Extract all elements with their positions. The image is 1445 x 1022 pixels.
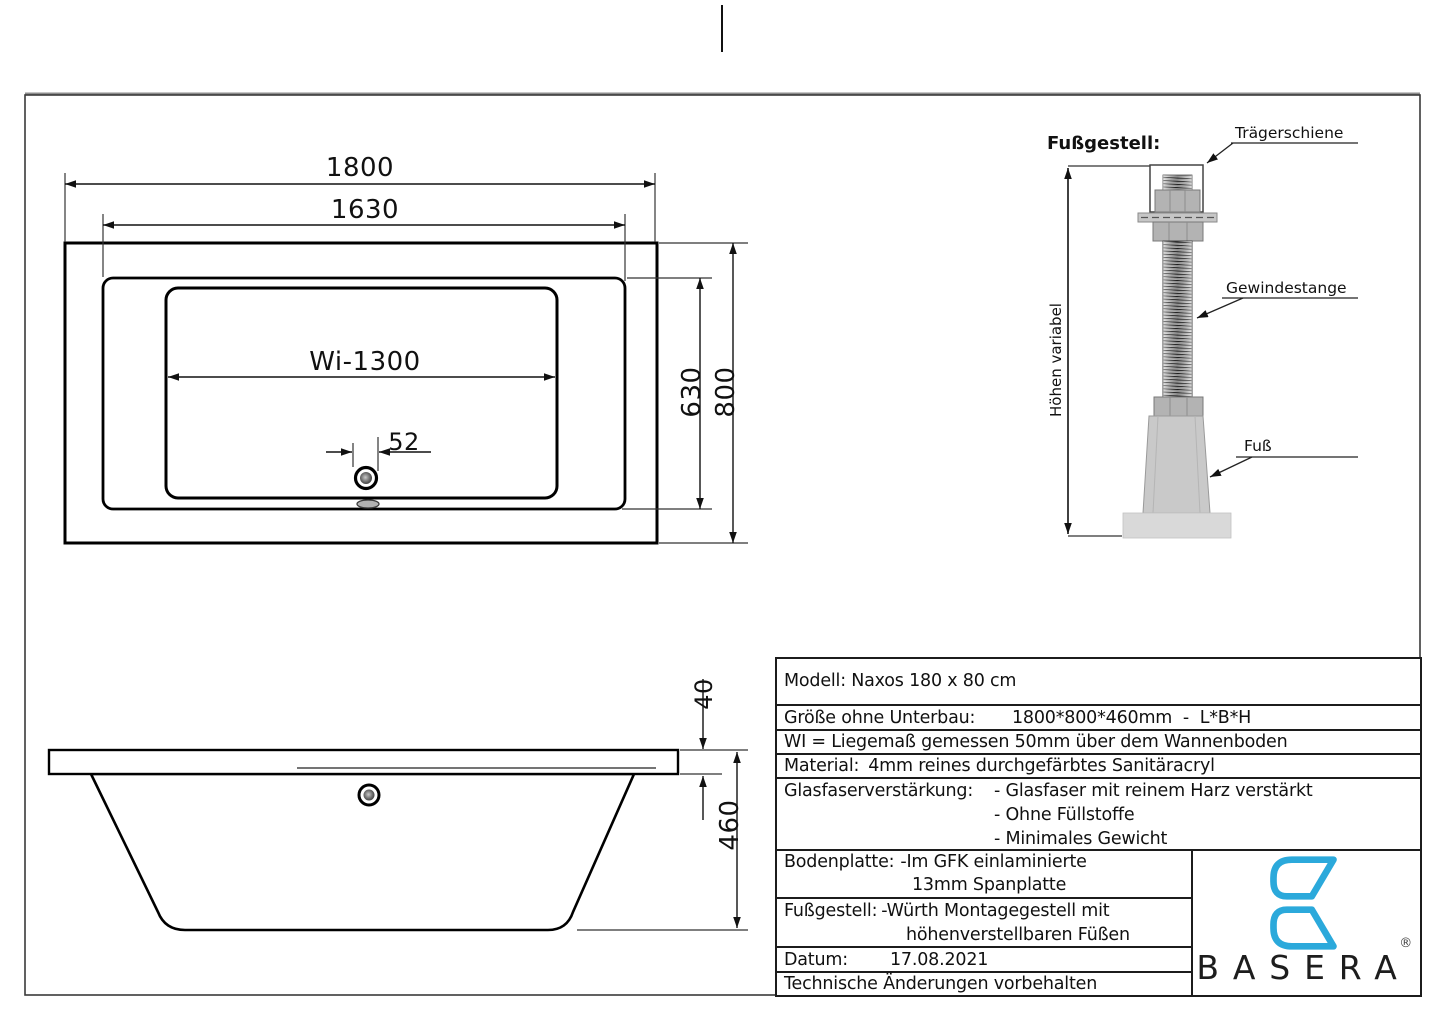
material-value: 4mm reines durchgefärbtes Sanitäracryl xyxy=(868,755,1215,777)
model-title: Modell: Naxos 180 x 80 cm xyxy=(777,659,1420,706)
foot-assembly-title: Fußgestell: xyxy=(1047,133,1160,154)
base-plate-shape xyxy=(1123,513,1231,538)
disclaimer: Technische Änderungen vorbehalten xyxy=(777,973,1191,995)
fiberglass-item: - Minimales Gewicht xyxy=(784,827,1420,851)
footframe-label: Fußgestell: xyxy=(784,899,877,923)
brand-logo-cell: BASERA ® xyxy=(1193,851,1420,995)
baseplate-line1: -Im GFK einlaminierte xyxy=(900,851,1086,874)
registered-trademark-icon: ® xyxy=(1399,936,1412,951)
title-block: Modell: Naxos 180 x 80 cm Größe ohne Unt… xyxy=(775,657,1422,997)
footframe-line1: -Würth Montagegestell mit xyxy=(881,899,1109,923)
baseplate-row: Bodenplatte: -Im GFK einlaminierte 13mm … xyxy=(777,851,1191,899)
foot-label: Fuß xyxy=(1244,437,1272,455)
fiberglass-item: - Glasfaser mit reinem Harz verstärkt xyxy=(994,779,1313,803)
threaded-rod-label: Gewindestange xyxy=(1226,279,1347,297)
dim-rim-length: 1630 xyxy=(310,195,420,225)
dim-drain-offset: 52 xyxy=(379,428,429,456)
dim-outer-length: 1800 xyxy=(305,153,415,183)
dim-rim-height: 40 xyxy=(690,664,714,724)
material-row: Material: 4mm reines durchgefärbtes Sani… xyxy=(777,755,1420,779)
drawing-sheet: 1800 1630 Wi-1300 52 630 800 40 460 Fußg… xyxy=(0,0,1445,1022)
date-row: Datum: 17.08.2021 xyxy=(777,948,1191,973)
brand-logo-icon xyxy=(1259,853,1347,953)
fiberglass-row: Glasfaserverstärkung: - Glasfaser mit re… xyxy=(777,779,1420,851)
material-label: Material: xyxy=(784,755,859,777)
dim-outer-width: 800 xyxy=(711,352,735,432)
title-block-left-column: Bodenplatte: -Im GFK einlaminierte 13mm … xyxy=(777,851,1193,995)
footframe-line2: höhenverstellbaren Füßen xyxy=(784,923,1191,947)
height-variable-label: Höhen variabel xyxy=(1047,285,1065,435)
fiberglass-item: - Ohne Füllstoffe xyxy=(784,803,1420,827)
date-value: 17.08.2021 xyxy=(890,948,988,971)
wi-note: WI = Liegemaß gemessen 50mm über dem Wan… xyxy=(777,731,1420,755)
brand-wordmark: BASERA xyxy=(1193,948,1414,987)
foot-assembly-diagram xyxy=(1068,143,1358,538)
threaded-rod-shape xyxy=(1163,241,1192,397)
size-row: Größe ohne Unterbau: 1800*800*460mm - L*… xyxy=(777,706,1420,731)
foot-shape xyxy=(1143,416,1210,513)
size-label: Größe ohne Unterbau: xyxy=(784,706,1012,729)
dim-rim-width: 630 xyxy=(677,352,701,432)
carrier-rail-label: Trägerschiene xyxy=(1235,124,1343,142)
side-drain-symbol xyxy=(359,785,379,805)
fiberglass-label: Glasfaserverstärkung: xyxy=(784,779,994,803)
footframe-row: Fußgestell: -Würth Montagegestell mit hö… xyxy=(777,899,1191,948)
baseplate-label: Bodenplatte: xyxy=(784,851,894,874)
baseplate-line2: 13mm Spanplatte xyxy=(784,874,1191,897)
size-value: 1800*800*460mm - L*B*H xyxy=(1012,706,1251,729)
date-label: Datum: xyxy=(784,948,890,971)
dim-total-height: 460 xyxy=(715,785,739,865)
dim-interior-length: Wi-1300 xyxy=(290,347,440,377)
side-view xyxy=(49,679,748,930)
drain-symbol xyxy=(356,468,377,489)
overflow-symbol xyxy=(357,500,379,508)
